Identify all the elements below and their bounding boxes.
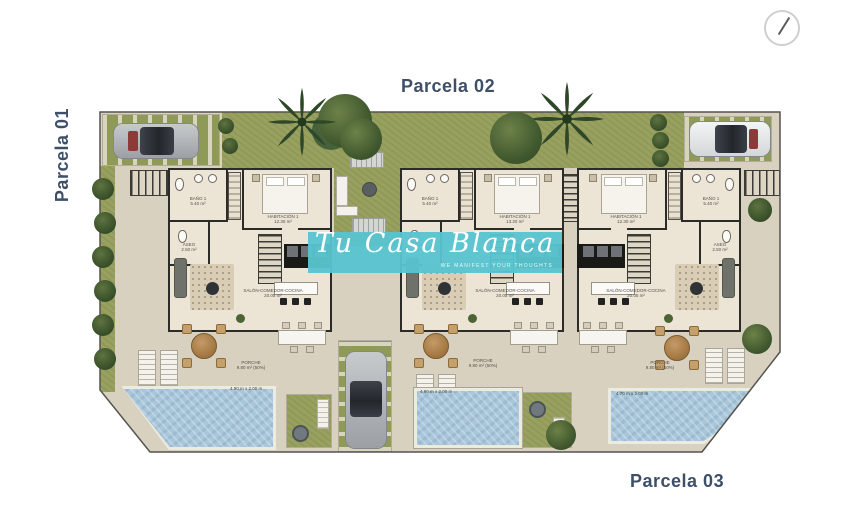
appliance xyxy=(287,246,298,257)
porche-label: PORCHE9.80 m² (50%) xyxy=(458,358,508,368)
chair xyxy=(522,346,530,353)
pillow xyxy=(625,177,643,186)
north-compass-icon xyxy=(764,10,800,46)
outdoor-sofa xyxy=(336,206,358,216)
nightstand xyxy=(589,174,597,182)
tree xyxy=(742,324,772,354)
wall xyxy=(681,220,739,222)
chair xyxy=(182,324,192,334)
floorplan: BAÑO 15.40 m² HABITACIÓN 112.30 m² ASEO2… xyxy=(577,168,741,332)
stool xyxy=(622,298,629,305)
chair xyxy=(689,360,699,370)
wall xyxy=(402,220,460,222)
toilet xyxy=(407,178,416,191)
car-windshield xyxy=(350,381,381,417)
double-bed xyxy=(601,174,647,214)
nightstand xyxy=(484,174,492,182)
wall xyxy=(208,222,210,266)
bush xyxy=(94,280,116,302)
appliance xyxy=(597,246,608,257)
chair xyxy=(655,326,665,336)
wall xyxy=(242,228,282,230)
bush xyxy=(94,348,116,370)
wall xyxy=(681,170,683,222)
chair xyxy=(216,358,226,368)
car-center xyxy=(346,352,386,448)
pillow xyxy=(604,177,622,186)
sun-lounger xyxy=(705,348,723,384)
room-label-bano: BAÑO 15.40 m² xyxy=(172,196,224,206)
sun-lounger xyxy=(160,350,178,386)
chair xyxy=(514,322,522,329)
porch-table xyxy=(278,330,326,345)
interior-stairs xyxy=(627,234,651,284)
car-windshield xyxy=(715,125,747,153)
wardrobe xyxy=(668,172,681,220)
chair xyxy=(216,324,226,334)
sun-loungers xyxy=(705,348,747,386)
bush xyxy=(652,150,669,167)
porch-dining-set xyxy=(278,324,330,352)
tree xyxy=(340,118,382,160)
bush xyxy=(650,114,667,131)
chair xyxy=(583,322,591,329)
pool-2 xyxy=(414,388,522,448)
porch-table xyxy=(579,330,627,345)
chair xyxy=(591,346,599,353)
sofa xyxy=(174,258,187,298)
bathroom-sink xyxy=(692,174,701,183)
site-plan-canvas: BAÑO 15.40 m² HABITACIÓN 112.30 m² ASEO2… xyxy=(0,0,863,514)
stool xyxy=(610,298,617,305)
car-white xyxy=(690,122,770,156)
chair xyxy=(538,346,546,353)
appliance xyxy=(611,246,622,257)
bush xyxy=(218,118,234,134)
chair xyxy=(414,324,424,334)
stool xyxy=(512,298,519,305)
room-label-habitacion: HABITACIÓN 112.30 m² xyxy=(591,214,661,224)
double-bed xyxy=(262,174,308,214)
round-wood-table xyxy=(423,333,449,359)
chair xyxy=(314,322,322,329)
room-label-salon: SALÓN-COMEDOR-COCINA20.05 m² xyxy=(591,288,681,298)
chair xyxy=(615,322,623,329)
pool-water xyxy=(417,391,519,445)
wall xyxy=(577,228,611,230)
pool-dimensions-label: 4.90 m x 2.00 m xyxy=(230,386,262,391)
wardrobe xyxy=(460,172,473,220)
nightstand xyxy=(649,174,657,182)
watermark-banner: Tu Casa Blanca WE MANIFEST YOUR THOUGHTS xyxy=(308,232,562,273)
room-label-salon: SALÓN-COMEDOR-COCINA20.05 m² xyxy=(228,288,318,298)
toilet xyxy=(725,178,734,191)
wardrobe xyxy=(228,172,241,220)
compass-needle xyxy=(778,17,790,35)
plant xyxy=(664,314,673,323)
round-wood-table xyxy=(664,335,690,361)
wall xyxy=(242,170,244,230)
pillow xyxy=(287,177,305,186)
chair xyxy=(689,326,699,336)
room-label-aseo: ASEO2.50 m² xyxy=(170,242,208,252)
terrace-table-set xyxy=(182,324,226,368)
chair xyxy=(607,346,615,353)
chair xyxy=(182,358,192,368)
pool-3 xyxy=(608,388,780,444)
porche-label: PORCHE9.80 m² (50%) xyxy=(226,360,276,370)
toilet xyxy=(175,178,184,191)
parcela-01-label: Parcela 01 xyxy=(52,108,73,202)
porch-dining-set xyxy=(579,324,631,352)
chair xyxy=(448,358,458,368)
kitchen-counter xyxy=(577,244,625,268)
chair xyxy=(546,322,554,329)
pool-dimensions-label: 4.70 m x 2.00 m xyxy=(616,391,648,396)
car-silver xyxy=(114,124,198,158)
room-label-habitacion: HABITACIÓN 113.20 m² xyxy=(480,214,550,224)
bush xyxy=(92,246,114,268)
room-label-bano: BAÑO 15.40 m² xyxy=(404,196,456,206)
bathroom-sink xyxy=(208,174,217,183)
bush xyxy=(222,138,238,154)
double-bed xyxy=(494,174,540,214)
chair xyxy=(306,346,314,353)
sun-lounger xyxy=(727,348,745,384)
tree xyxy=(490,112,542,164)
brand-tagline: WE MANIFEST YOUR THOUGHTS xyxy=(441,263,553,269)
bathroom-sink xyxy=(440,174,449,183)
outdoor-shower-tub xyxy=(529,401,546,418)
sun-lounger xyxy=(138,350,156,386)
bench xyxy=(317,399,329,429)
bush xyxy=(94,212,116,234)
coffee-table xyxy=(438,282,451,295)
coffee-table xyxy=(690,282,703,295)
pool-dimensions-label: 4.90 m x 2.00 m xyxy=(420,389,452,394)
car-accent xyxy=(128,131,137,151)
stairs-middle xyxy=(562,174,578,222)
outdoor-sofa xyxy=(336,176,348,206)
tree xyxy=(546,420,576,450)
porche-label: PORCHE9.80 m² (50%) xyxy=(635,360,685,370)
outdoor-shower-tub xyxy=(292,425,309,442)
room-label-salon: SALÓN-COMEDOR-COCINA20.05 m² xyxy=(460,288,550,298)
garden-patch-1 xyxy=(286,394,332,448)
chair xyxy=(414,358,424,368)
stool xyxy=(598,298,605,305)
bush xyxy=(748,198,772,222)
round-wood-table xyxy=(191,333,217,359)
palm-tree-icon xyxy=(266,86,338,158)
bush xyxy=(92,178,114,200)
entry-stairs-left xyxy=(130,170,168,196)
interior-stairs xyxy=(258,234,282,284)
plant xyxy=(468,314,477,323)
room-label-aseo: ASEO2.50 m² xyxy=(701,242,739,252)
chair xyxy=(448,324,458,334)
parcela-03-label: Parcela 03 xyxy=(630,471,724,492)
wall xyxy=(474,170,476,230)
bathroom-sink xyxy=(426,174,435,183)
chair xyxy=(282,322,290,329)
stool xyxy=(524,298,531,305)
chair xyxy=(599,322,607,329)
chair xyxy=(298,322,306,329)
nightstand xyxy=(252,174,260,182)
bush xyxy=(652,132,669,149)
porch-table xyxy=(510,330,558,345)
appliance xyxy=(583,246,594,257)
wall xyxy=(665,170,667,230)
pool-water xyxy=(611,391,777,441)
entry-stairs-right xyxy=(744,170,780,196)
pool-water xyxy=(109,389,273,447)
terrace-table-set xyxy=(414,324,458,368)
chair xyxy=(530,322,538,329)
porch-dining-set xyxy=(510,324,562,352)
nightstand xyxy=(544,174,552,182)
sun-loungers xyxy=(138,350,180,388)
nightstand xyxy=(312,174,320,182)
bathroom-sink xyxy=(706,174,715,183)
plant xyxy=(236,314,245,323)
stool xyxy=(292,298,299,305)
room-label-habitacion: HABITACIÓN 112.30 m² xyxy=(248,214,318,224)
stool xyxy=(536,298,543,305)
brand-script: Tu Casa Blanca xyxy=(308,228,562,259)
chair xyxy=(290,346,298,353)
room-label-bano: BAÑO 15.40 m² xyxy=(685,196,737,206)
pool-1 xyxy=(106,386,276,450)
bathroom-sink xyxy=(194,174,203,183)
stool xyxy=(280,298,287,305)
pillow xyxy=(519,177,537,186)
stool xyxy=(304,298,311,305)
wall xyxy=(170,220,228,222)
car-windshield xyxy=(140,127,174,155)
wall xyxy=(627,228,667,230)
pillow xyxy=(266,177,284,186)
sofa xyxy=(722,258,735,298)
pillow xyxy=(498,177,516,186)
parcela-02-label: Parcela 02 xyxy=(401,76,495,97)
car-accent xyxy=(749,129,758,149)
coffee-table xyxy=(206,282,219,295)
outdoor-round-table xyxy=(362,182,377,197)
bush xyxy=(92,314,114,336)
